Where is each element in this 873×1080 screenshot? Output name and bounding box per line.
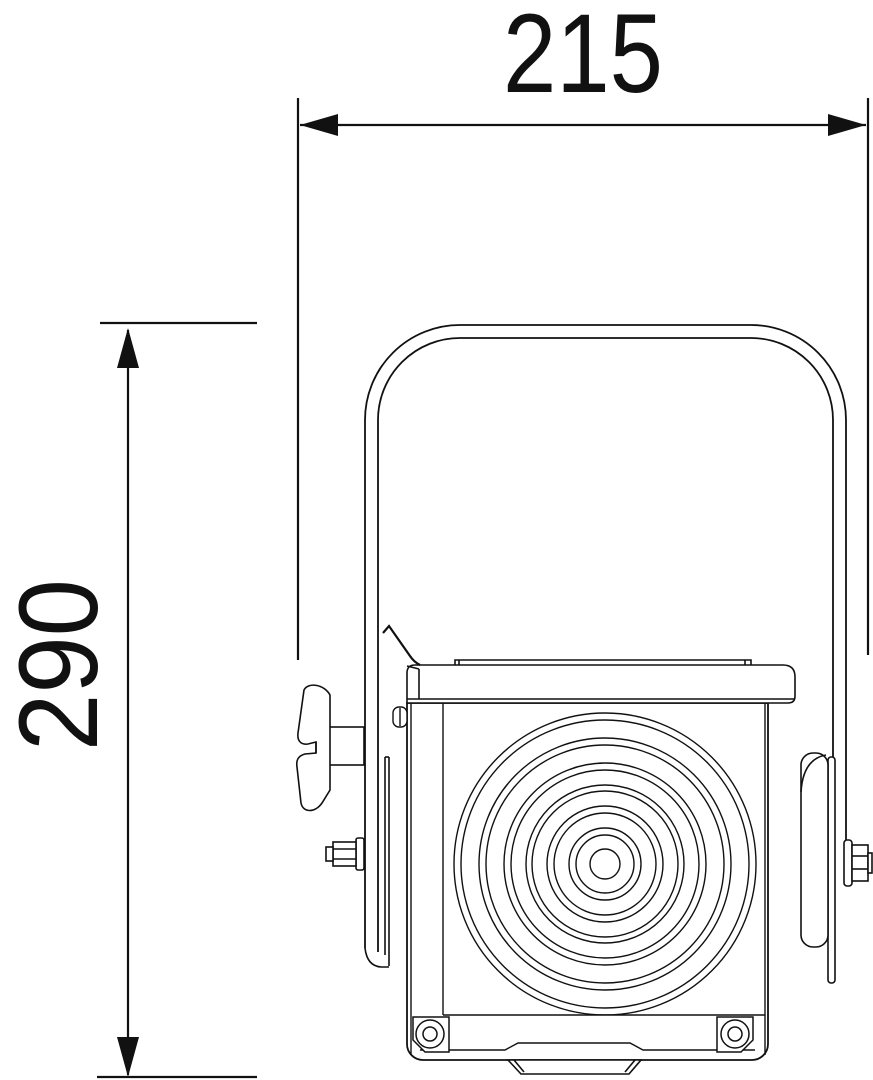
knob-grip xyxy=(297,685,330,810)
right-pivot-bolt xyxy=(844,840,872,886)
arrowhead-left xyxy=(300,114,338,136)
arrowhead-right xyxy=(828,114,866,136)
arrowhead-up xyxy=(117,328,139,368)
bottom-mounting-tab xyxy=(508,1060,641,1074)
left-side-bracket xyxy=(365,757,389,967)
arrowhead-down xyxy=(117,1037,139,1077)
right-side-bracket xyxy=(801,753,835,983)
height-dimension xyxy=(97,323,257,1077)
tilt-lever xyxy=(383,626,420,665)
top-bar-outline xyxy=(407,665,795,703)
left-pivot-bolt xyxy=(326,838,364,870)
width-dimension xyxy=(298,98,868,660)
width-dimension-label: 215 xyxy=(503,0,663,116)
top-cover-bar xyxy=(407,660,795,703)
knob-shaft xyxy=(328,727,364,765)
technical-drawing-page: 215 290 xyxy=(0,0,873,1080)
tilt-lock-knob xyxy=(297,685,364,810)
drawing-svg: 215 290 xyxy=(0,0,873,1080)
height-dimension-label: 290 xyxy=(0,579,121,751)
left-edge-screw xyxy=(393,707,407,727)
